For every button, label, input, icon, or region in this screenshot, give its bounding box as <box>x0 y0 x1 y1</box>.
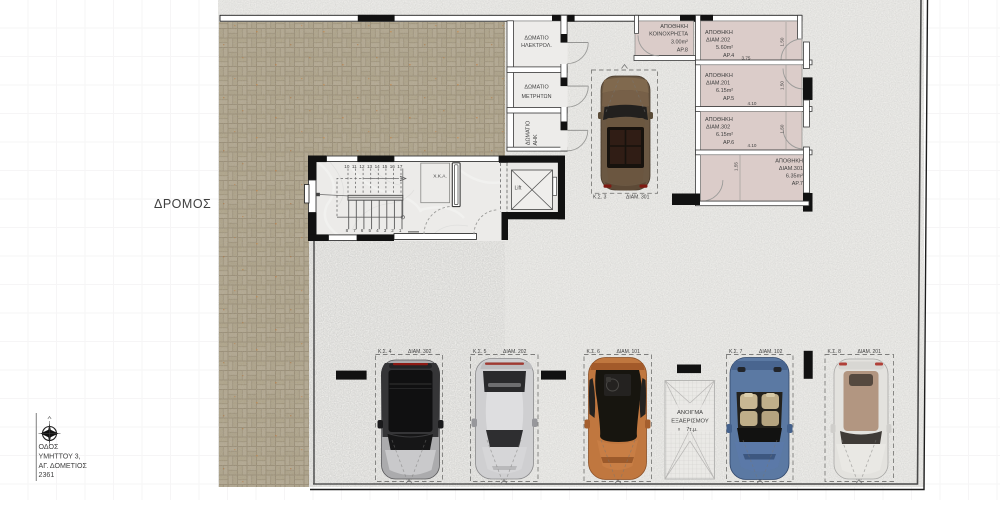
svg-text:ΔΙΑΜ.302: ΔΙΑΜ.302 <box>706 125 730 131</box>
svg-text:17: 17 <box>397 164 403 169</box>
svg-text:Χ.Κ.Α.: Χ.Κ.Α. <box>433 173 447 179</box>
svg-text:ΑΝΟΙΓΜΑ: ΑΝΟΙΓΜΑ <box>677 410 703 416</box>
svg-text:ΕΞΑΕΡΙΣΜΟΥ: ΕΞΑΕΡΙΣΜΟΥ <box>671 419 709 425</box>
svg-text:ΔΙΑΜ.202: ΔΙΑΜ.202 <box>706 38 730 44</box>
svg-text:2361: 2361 <box>39 471 55 479</box>
svg-text:14: 14 <box>375 164 381 169</box>
svg-text:3.00m²: 3.00m² <box>671 40 688 46</box>
svg-text:ΔΩΜΑΤΙΟ: ΔΩΜΑΤΙΟ <box>524 36 548 42</box>
svg-text:ΔΙΑΜ. 302: ΔΙΑΜ. 302 <box>408 349 432 355</box>
svg-text:ΑΗΚ: ΑΗΚ <box>533 134 539 145</box>
svg-text:13: 13 <box>367 164 373 169</box>
svg-text:ΔΩΜΑΤΙΟ: ΔΩΜΑΤΙΟ <box>526 121 532 145</box>
svg-text:Κ.Σ. 6: Κ.Σ. 6 <box>587 349 601 355</box>
svg-text:ΥΜΗΤΤΟΥ 3,: ΥΜΗΤΤΟΥ 3, <box>39 452 81 460</box>
svg-text:Κ.Σ. 7: Κ.Σ. 7 <box>729 349 743 355</box>
svg-text:ΔΙΑΜ. 201: ΔΙΑΜ. 201 <box>858 349 882 355</box>
svg-text:ΑΓ. ΔΟΜΕΤΙΟΣ: ΑΓ. ΔΟΜΕΤΙΟΣ <box>39 462 88 470</box>
svg-text:ΑΠΟΘΗΚΗ: ΑΠΟΘΗΚΗ <box>705 30 733 36</box>
svg-text:ΑΠΟΘΗΚΗ: ΑΠΟΘΗΚΗ <box>660 24 688 30</box>
svg-text:ΑΠΟΘΗΚΗ: ΑΠΟΘΗΚΗ <box>705 117 733 123</box>
svg-text:11: 11 <box>352 164 357 169</box>
svg-text:ΑΡ.8: ΑΡ.8 <box>677 47 688 53</box>
svg-text:ΑΡ.5: ΑΡ.5 <box>723 96 734 102</box>
svg-text:ΑΡ.4: ΑΡ.4 <box>723 53 734 59</box>
svg-text:6.15m²: 6.15m² <box>716 132 733 138</box>
svg-text:1.50: 1.50 <box>780 37 785 46</box>
svg-text:5: 5 <box>369 228 372 233</box>
svg-text:10: 10 <box>344 164 350 169</box>
svg-text:ΟΔΟΣ: ΟΔΟΣ <box>39 443 59 451</box>
svg-text:ΗΛΕΚΤΡΟΛ.: ΗΛΕΚΤΡΟΛ. <box>521 43 552 49</box>
svg-text:3.75: 3.75 <box>742 56 751 61</box>
svg-text:ΔΙΑΜ. 102: ΔΙΑΜ. 102 <box>759 349 783 355</box>
svg-text:1: 1 <box>399 228 402 233</box>
svg-text:4: 4 <box>376 228 379 233</box>
svg-text:ΔΙΑΜ. 301: ΔΙΑΜ. 301 <box>626 194 650 200</box>
svg-text:ΔΡΟΜΟΣ: ΔΡΟΜΟΣ <box>154 197 211 211</box>
svg-text:16: 16 <box>390 164 396 169</box>
svg-text:ΑΠΟΘΗΚΗ: ΑΠΟΘΗΚΗ <box>775 158 803 164</box>
svg-text:4.10: 4.10 <box>748 101 757 106</box>
svg-text:12: 12 <box>359 164 365 169</box>
svg-text:ΑΡ.7: ΑΡ.7 <box>792 181 803 187</box>
svg-text:2: 2 <box>391 228 394 233</box>
svg-text:6.15m²: 6.15m² <box>716 88 733 94</box>
svg-text:7τ.μ.: 7τ.μ. <box>686 427 697 433</box>
svg-text:7: 7 <box>353 228 356 233</box>
svg-text:ΔΙΑΜ. 101: ΔΙΑΜ. 101 <box>617 349 641 355</box>
svg-text:ΔΙΑΜ.201: ΔΙΑΜ.201 <box>706 81 730 87</box>
svg-text:8: 8 <box>346 228 349 233</box>
svg-text:Lift: Lift <box>515 186 522 192</box>
svg-text:Κ.Σ. 3: Κ.Σ. 3 <box>593 194 607 200</box>
svg-text:Κ.Σ. 4: Κ.Σ. 4 <box>378 349 392 355</box>
svg-text:ΔΙΑΜ. 202: ΔΙΑΜ. 202 <box>503 349 527 355</box>
svg-text:4.10: 4.10 <box>748 143 757 148</box>
svg-text:1.55: 1.55 <box>734 162 739 171</box>
svg-text:6.35m²: 6.35m² <box>786 174 803 180</box>
svg-text:ΔΙΑΜ.301: ΔΙΑΜ.301 <box>779 166 803 172</box>
svg-text:15: 15 <box>382 164 388 169</box>
svg-text:ΔΩΜΑΤΙΟ: ΔΩΜΑΤΙΟ <box>524 85 548 91</box>
svg-text:6: 6 <box>361 228 364 233</box>
svg-text:ΚΟΙΝΟΧΡΗΣΤΑ: ΚΟΙΝΟΧΡΗΣΤΑ <box>649 32 688 38</box>
svg-text:3: 3 <box>384 228 387 233</box>
svg-text:ΜΕΤΡΗΤΩΝ: ΜΕΤΡΗΤΩΝ <box>522 94 552 100</box>
svg-text:Κ.Σ. 8: Κ.Σ. 8 <box>828 349 842 355</box>
svg-text:ΑΡ.6: ΑΡ.6 <box>723 140 734 146</box>
svg-text:ΑΠΟΘΗΚΗ: ΑΠΟΘΗΚΗ <box>705 73 733 79</box>
svg-text:1.50: 1.50 <box>780 124 785 133</box>
svg-text:Κ.Σ. 5: Κ.Σ. 5 <box>473 349 487 355</box>
svg-text:5.60m²: 5.60m² <box>716 45 733 51</box>
svg-text:1.50: 1.50 <box>780 81 785 90</box>
